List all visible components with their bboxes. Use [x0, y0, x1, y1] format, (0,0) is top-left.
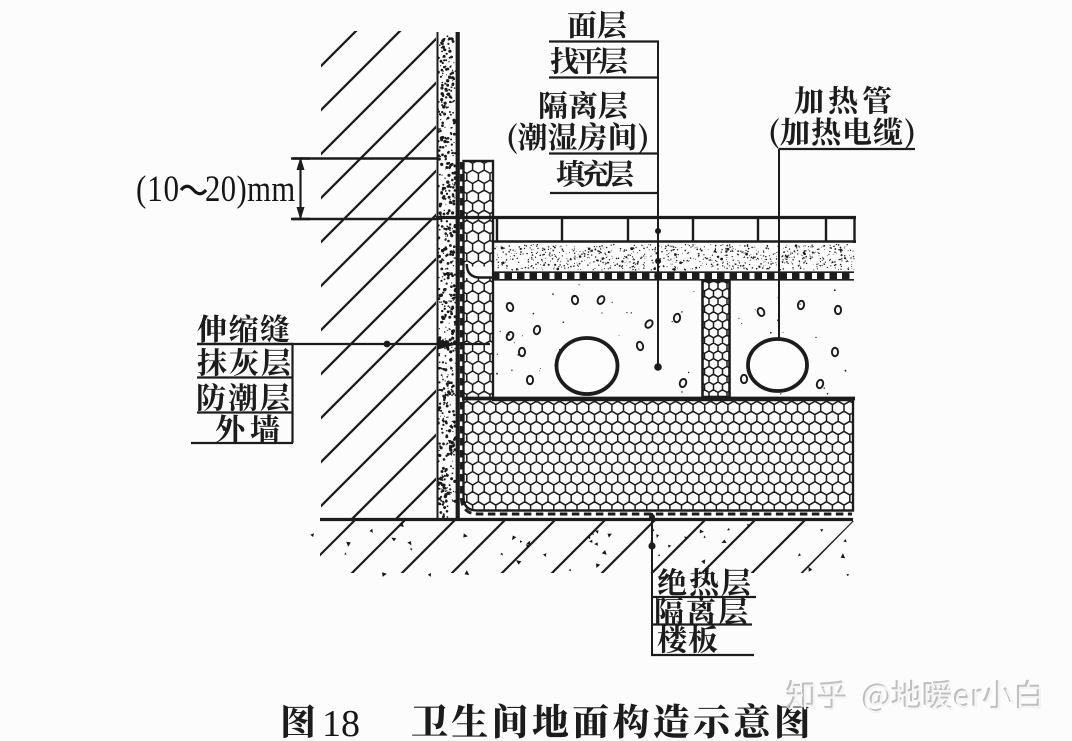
- svg-text:18: 18: [322, 703, 360, 741]
- svg-text:20)mm: 20)mm: [205, 170, 296, 210]
- svg-text:(10: (10: [136, 170, 180, 210]
